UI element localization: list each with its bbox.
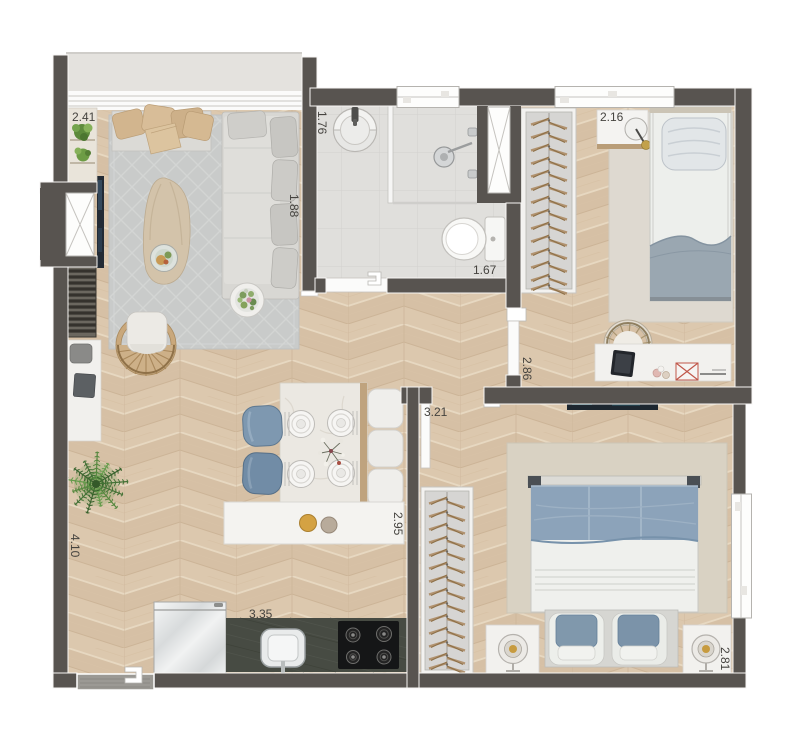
svg-text:2.16: 2.16: [600, 110, 624, 124]
svg-text:4.10: 4.10: [68, 534, 82, 558]
svg-text:3.21: 3.21: [424, 405, 448, 419]
svg-text:1.88: 1.88: [287, 194, 301, 218]
svg-text:2.95: 2.95: [391, 512, 405, 536]
svg-text:2.81: 2.81: [718, 647, 732, 671]
svg-text:1.67: 1.67: [473, 263, 497, 277]
svg-text:1.76: 1.76: [315, 111, 329, 135]
svg-text:2.41: 2.41: [72, 110, 96, 124]
svg-text:2.86: 2.86: [520, 357, 534, 381]
svg-text:3.35: 3.35: [249, 607, 273, 621]
